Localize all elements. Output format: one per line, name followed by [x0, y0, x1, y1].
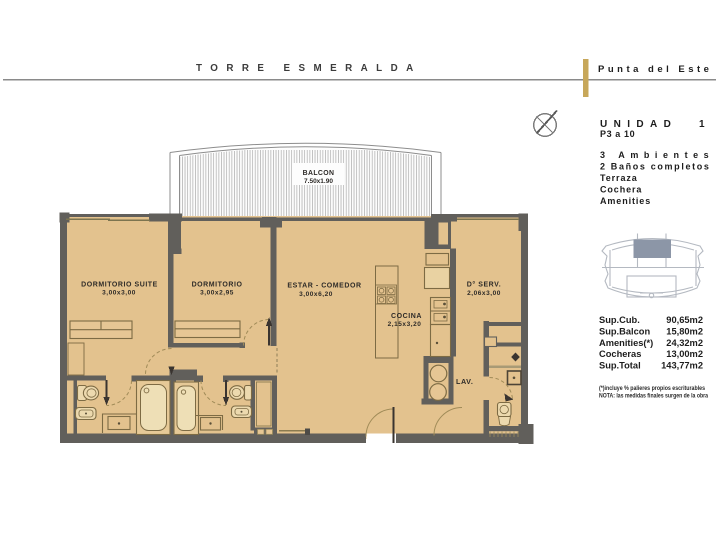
svg-text:COCINA: COCINA — [391, 313, 422, 320]
svg-text:2,06x3,00: 2,06x3,00 — [467, 290, 501, 297]
svg-text:143,77m2: 143,77m2 — [661, 361, 703, 371]
svg-text:(*)incluye % palieres propios: (*)incluye % palieres propios escriturab… — [599, 385, 705, 392]
svg-text:BALCON: BALCON — [303, 170, 335, 177]
svg-text:DORMITORIO: DORMITORIO — [192, 282, 243, 289]
svg-text:Sup.Total: Sup.Total — [599, 361, 641, 371]
svg-text:TORRE ESMERALDA: TORRE ESMERALDA — [196, 63, 422, 74]
svg-text:3 Ambientes: 3 Ambientes — [600, 150, 714, 160]
svg-text:3,00x3,00: 3,00x3,00 — [102, 290, 136, 297]
svg-text:Cocheras: Cocheras — [599, 349, 641, 359]
svg-text:Sup.Balcon: Sup.Balcon — [599, 326, 650, 336]
svg-text:2 Baños completos: 2 Baños completos — [600, 162, 711, 172]
svg-text:Amenities(*): Amenities(*) — [599, 338, 653, 348]
svg-text:24,32m2: 24,32m2 — [666, 338, 703, 348]
svg-text:LAV.: LAV. — [456, 377, 473, 386]
svg-text:3,00x6,20: 3,00x6,20 — [299, 291, 333, 298]
svg-text:Terraza: Terraza — [600, 173, 638, 183]
svg-text:15,80m2: 15,80m2 — [666, 326, 703, 336]
svg-text:DORMITORIO SUITE: DORMITORIO SUITE — [81, 282, 158, 289]
svg-text:P3 a 10: P3 a 10 — [600, 129, 635, 139]
svg-text:7.50x1.90: 7.50x1.90 — [304, 178, 333, 185]
svg-text:Sup.Cub.: Sup.Cub. — [599, 315, 640, 325]
svg-text:1: 1 — [699, 119, 705, 130]
svg-text:Amenities: Amenities — [600, 196, 651, 206]
svg-text:ESTAR - COMEDOR: ESTAR - COMEDOR — [287, 283, 361, 290]
svg-text:Cochera: Cochera — [600, 185, 642, 195]
svg-text:2,15x3,20: 2,15x3,20 — [388, 321, 422, 328]
svg-text:Punta del Este: Punta del Este — [598, 64, 712, 75]
svg-text:3,00x2,95: 3,00x2,95 — [200, 290, 234, 297]
svg-text:13,00m2: 13,00m2 — [666, 349, 703, 359]
svg-text:90,65m2: 90,65m2 — [666, 315, 703, 325]
svg-text:D° SERV.: D° SERV. — [467, 281, 501, 289]
svg-text:NOTA: las medidas finales surg: NOTA: las medidas finales surgen de la o… — [599, 393, 708, 400]
